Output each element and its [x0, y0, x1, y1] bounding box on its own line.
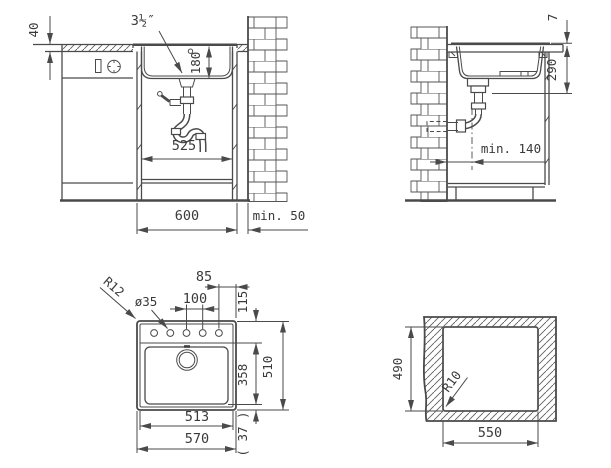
trap-union-1 — [172, 129, 181, 135]
bowl-outer-wall — [142, 47, 233, 79]
dim-cabinet-inner-width: 525 — [142, 138, 233, 159]
dim-bowl-depth: 180 — [188, 47, 209, 79]
drain-plan-inner — [179, 352, 195, 368]
dim-label-180: 180 — [188, 52, 203, 75]
bowl-plan — [145, 347, 228, 404]
sink-outline-plan — [137, 321, 236, 410]
dim-corner-radius-plan: R12 — [100, 274, 136, 319]
dim-cabinet-width: 600 — [137, 203, 237, 234]
panel-section-ticks — [137, 64, 237, 190]
dim-front-deck: 115 — [233, 291, 289, 356]
appliance-handle — [96, 60, 102, 73]
dim-label-min50: min. 50 — [253, 208, 306, 223]
cabinet-bottom-side — [448, 184, 545, 188]
plinth — [456, 187, 533, 201]
dim-overall-depth: 290 — [492, 46, 572, 94]
countertop-side — [447, 45, 563, 53]
front-section-view: 40 — [26, 13, 308, 234]
dim-label-min140: min. 140 — [481, 141, 541, 156]
brick-wall-front — [248, 16, 287, 202]
tap-holes — [151, 330, 223, 337]
dim-inner-width-plan: 513 — [140, 409, 233, 430]
mounting-clips — [449, 52, 547, 58]
dim-hole-spacing: 100 — [170, 291, 219, 329]
cabinet-front — [60, 45, 250, 201]
overflow-mark-plan — [184, 345, 190, 348]
dim-label-d35: ø35 — [135, 294, 158, 309]
brick-wall-side — [411, 26, 447, 202]
dim-label-290: 290 — [544, 59, 559, 82]
drain-nut-side — [472, 103, 486, 109]
dim-wall-clearance: min. 50 — [248, 203, 308, 234]
knob-ticks — [108, 61, 120, 73]
dim-label-40: 40 — [26, 22, 41, 37]
appliance-branch — [170, 100, 181, 106]
countertop-hatch-left — [62, 45, 133, 52]
drawing-canvas: 40 — [0, 0, 611, 468]
drain-outlet — [179, 79, 195, 88]
dim-label-37: ( 37 ) — [235, 411, 250, 456]
dim-label-550: 550 — [478, 425, 502, 441]
sink-installation-drawing: 40 — [0, 0, 611, 468]
dim-drain-size: 3½″ — [131, 13, 182, 73]
dim-label-7: 7 — [545, 14, 560, 22]
dim-label-85: 85 — [196, 269, 212, 285]
cutout-view: 490 R10 550 — [390, 317, 556, 447]
dim-label-358: 358 — [235, 364, 250, 387]
dim-label-513: 513 — [185, 409, 209, 425]
dim-label-510: 510 — [260, 356, 275, 379]
sink-bowl-front — [133, 44, 237, 87]
cabinet-shelf — [142, 180, 233, 184]
dim-counter-thickness: 40 — [26, 16, 50, 80]
trap-union-2 — [196, 134, 206, 140]
cutout-rect — [443, 327, 538, 411]
dim-label-600: 600 — [175, 208, 199, 224]
appliance-panel — [62, 45, 133, 201]
dim-hole-diameter: ø35 — [135, 294, 168, 329]
drain-nut — [181, 97, 194, 104]
drain-plan-outer — [177, 350, 198, 371]
dim-label-100: 100 — [183, 291, 207, 307]
dim-label-525: 525 — [172, 138, 196, 154]
cabinet-side-panels — [137, 52, 237, 200]
side-section-view: 7 290 min. 140 — [405, 14, 572, 202]
dim-label-570: 570 — [185, 431, 209, 447]
dim-label-115: 115 — [235, 291, 250, 314]
overflow-ledge — [500, 72, 537, 77]
dim-label-drain: 3½″ — [131, 13, 155, 29]
plan-view: 85 100 115 358 510 — [100, 269, 289, 457]
dim-rear-gap: ( 37 ) — [235, 411, 256, 457]
dim-rim-height: 7 — [545, 14, 572, 44]
drain-body-side — [468, 79, 489, 87]
dim-label-490: 490 — [390, 358, 405, 381]
countertop-hatch-right — [238, 45, 249, 52]
dim-label-r12: R12 — [101, 274, 128, 300]
